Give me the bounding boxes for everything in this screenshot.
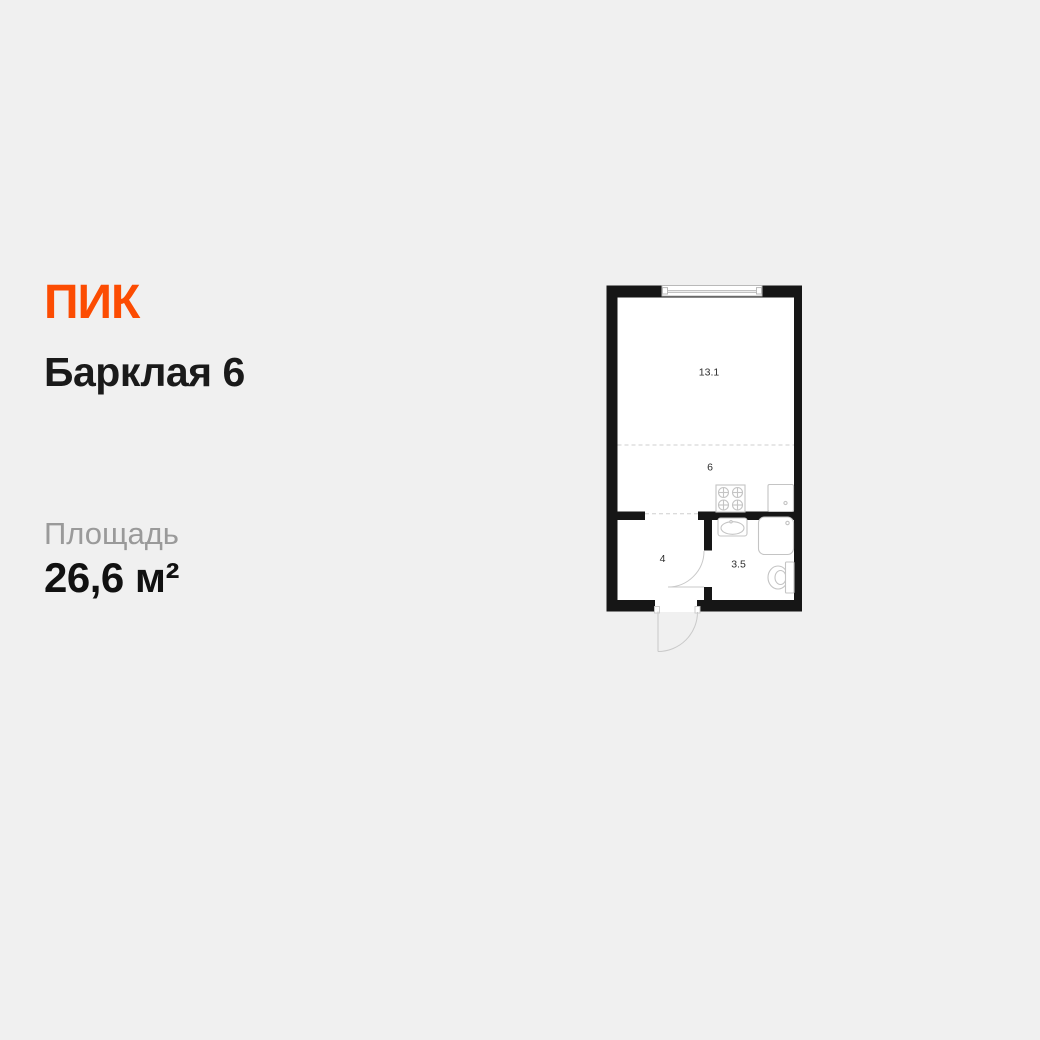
stove-icon <box>716 485 745 512</box>
area-label: Площадь <box>44 518 179 549</box>
shower-tray-icon <box>759 517 794 555</box>
room-label-living-room: 13.1 <box>699 367 720 379</box>
floor-plan: 13.1 6 4 3.5 <box>595 275 815 665</box>
entrance-door-icon <box>658 612 698 652</box>
apartment-interior <box>607 286 803 612</box>
window-icon <box>662 286 762 297</box>
room-label-kitchen: 6 <box>707 462 713 474</box>
bathroom-sink-icon <box>718 518 747 536</box>
area-value: 26,6 м² <box>44 557 179 599</box>
entrance-opening <box>655 600 701 614</box>
listing-card: ПИК Барклая 6 Площадь 26,6 м² <box>0 0 1040 1040</box>
room-label-bathroom: 3.5 <box>731 559 746 571</box>
pik-logo: ПИК <box>44 279 139 327</box>
kitchen-sink-icon <box>768 485 794 512</box>
room-label-hallway: 4 <box>660 553 666 565</box>
listing-title: Барклая 6 <box>44 352 245 393</box>
